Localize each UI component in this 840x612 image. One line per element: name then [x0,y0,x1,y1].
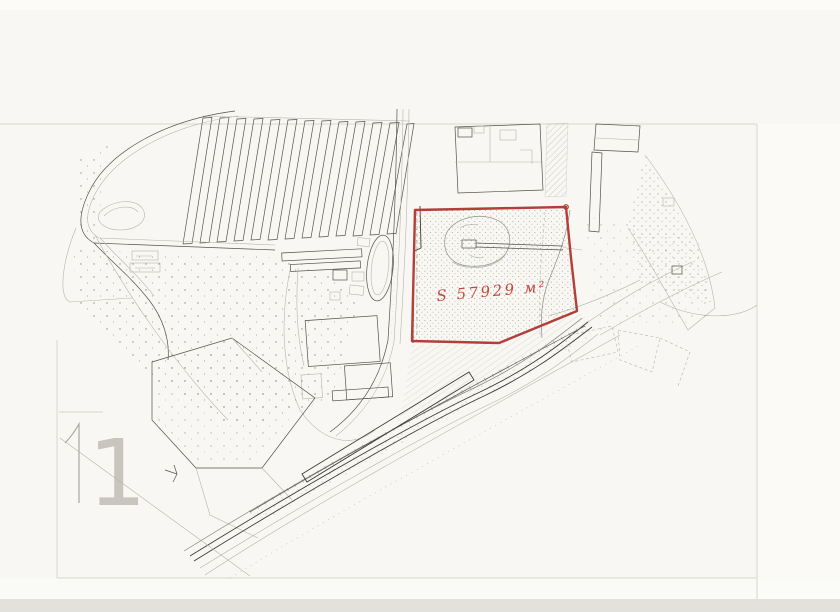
scan-right-band [757,124,840,600]
scan-top-band [0,0,840,10]
scan-bottom-edge [0,599,840,612]
scanned-plan-page: 1 [0,0,840,612]
hatched-strip [545,123,568,197]
scan-bottom-margin [0,578,840,600]
sheet-number: 1 [88,420,147,527]
map-canvas: 1 [0,0,840,612]
